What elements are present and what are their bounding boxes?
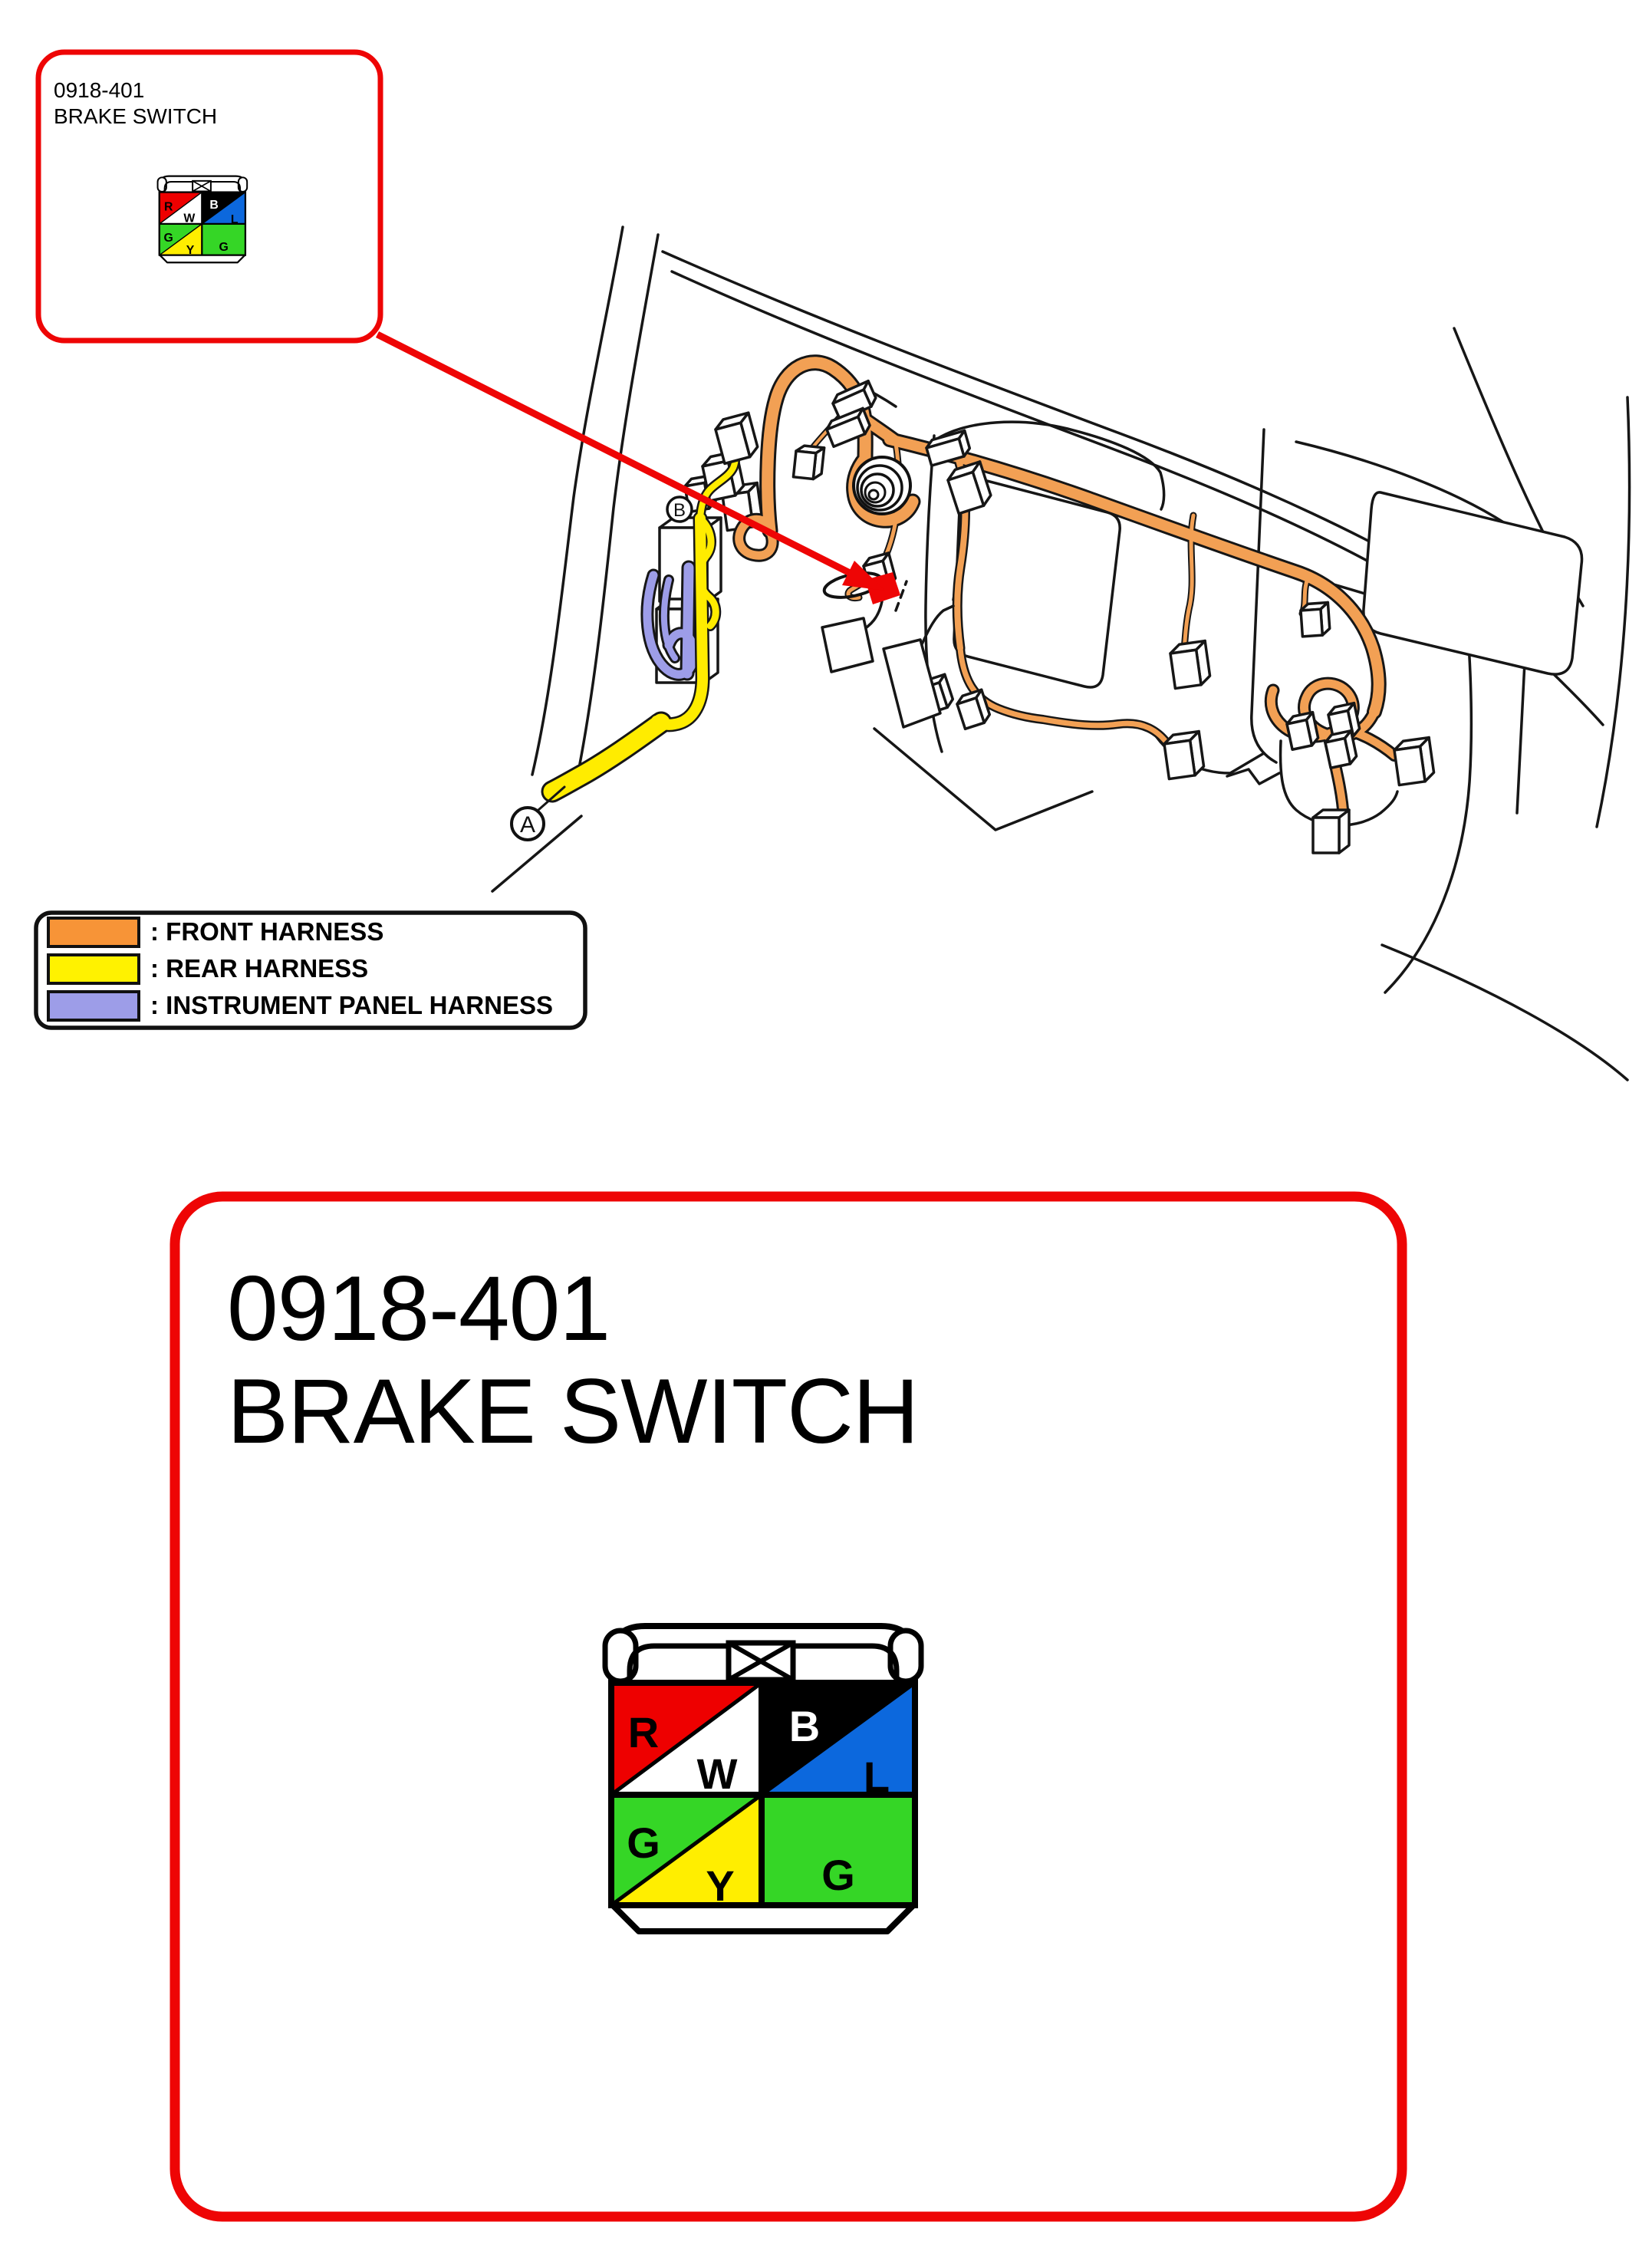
harness-illustration: A B	[492, 227, 1630, 1080]
right-sill-line	[1382, 945, 1627, 1080]
pigtail-connector	[793, 445, 824, 480]
connector-pinout-icon-small	[158, 176, 248, 263]
legend-row-front: : FRONT HARNESS	[48, 917, 383, 946]
legend-row-rear: : REAR HARNESS	[48, 954, 368, 983]
below-cup-connector	[1313, 810, 1349, 853]
a-pillar-inner-line	[580, 235, 658, 764]
right-cluster-connector-3	[1324, 731, 1357, 769]
legend-swatch-rear	[48, 955, 139, 983]
legend-swatch-instrument	[48, 992, 139, 1020]
wiring-location-page: R W B L G Y G	[0, 0, 1652, 2241]
mid-branch-connector	[1170, 641, 1211, 689]
connector-pinout-icon-large	[605, 1626, 921, 1931]
page-canvas: R W B L G Y G	[0, 0, 1652, 2241]
right-branch-connector	[1300, 603, 1330, 637]
detail-panel: 0918-401 BRAKE SWITCH	[175, 1197, 1402, 2217]
legend-row-instrument: : INSTRUMENT PANEL HARNESS	[48, 991, 553, 1020]
legend-label-front: : FRONT HARNESS	[150, 917, 383, 946]
callout-code: 0918-401	[54, 78, 144, 102]
point-b-label: B	[667, 497, 692, 522]
point-a-label: A	[512, 808, 544, 840]
point-a-letter: A	[520, 812, 535, 838]
callout-title: BRAKE SWITCH	[54, 104, 217, 128]
steering-coil	[854, 457, 910, 514]
a-pillar-outer-line	[532, 227, 623, 775]
floor-connector-2	[956, 690, 992, 729]
console-bottom-line	[874, 729, 1092, 830]
floor-connector-3	[1163, 732, 1205, 779]
right-end-connector	[1394, 738, 1435, 785]
brake-pedal-pad	[822, 618, 873, 672]
legend-swatch-front	[48, 918, 139, 946]
right-body-line	[1597, 397, 1630, 827]
detail-title: BRAKE SWITCH	[227, 1360, 918, 1463]
callout-bubble: 0918-401 BRAKE SWITCH	[38, 52, 380, 341]
legend-label-rear: : REAR HARNESS	[150, 954, 368, 983]
accelerator-pedal-pad	[884, 640, 940, 727]
legend-label-instrument: : INSTRUMENT PANEL HARNESS	[150, 991, 553, 1019]
rear-harness	[538, 436, 736, 810]
point-b-letter: B	[673, 500, 686, 521]
glove-box-panel	[1364, 492, 1582, 674]
legend-box: : FRONT HARNESS : REAR HARNESS : INSTRUM…	[36, 913, 585, 1028]
brake-pedal	[822, 601, 882, 672]
right-cluster-connector-1	[1285, 713, 1319, 750]
detail-code: 0918-401	[227, 1257, 610, 1360]
